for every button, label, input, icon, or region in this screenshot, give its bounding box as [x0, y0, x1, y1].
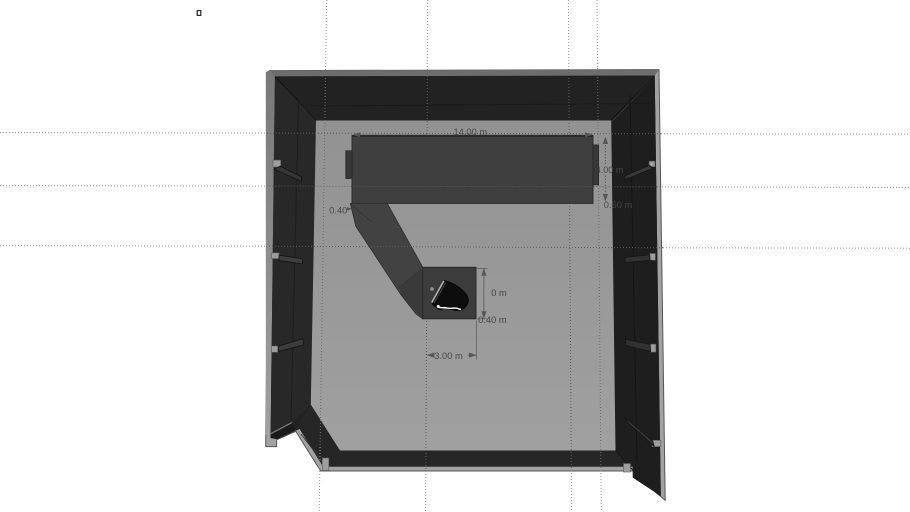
svg-text:14.00 m: 14.00 m: [454, 127, 488, 137]
svg-text:3.00 m: 3.00 m: [434, 351, 463, 361]
svg-text:0.40 m: 0.40 m: [478, 315, 507, 325]
svg-text:0.50 m: 0.50 m: [604, 200, 633, 210]
svg-text:4.00 m: 4.00 m: [596, 165, 624, 175]
svg-text:0.40: 0.40: [329, 206, 347, 216]
svg-text:0 m: 0 m: [491, 288, 507, 298]
